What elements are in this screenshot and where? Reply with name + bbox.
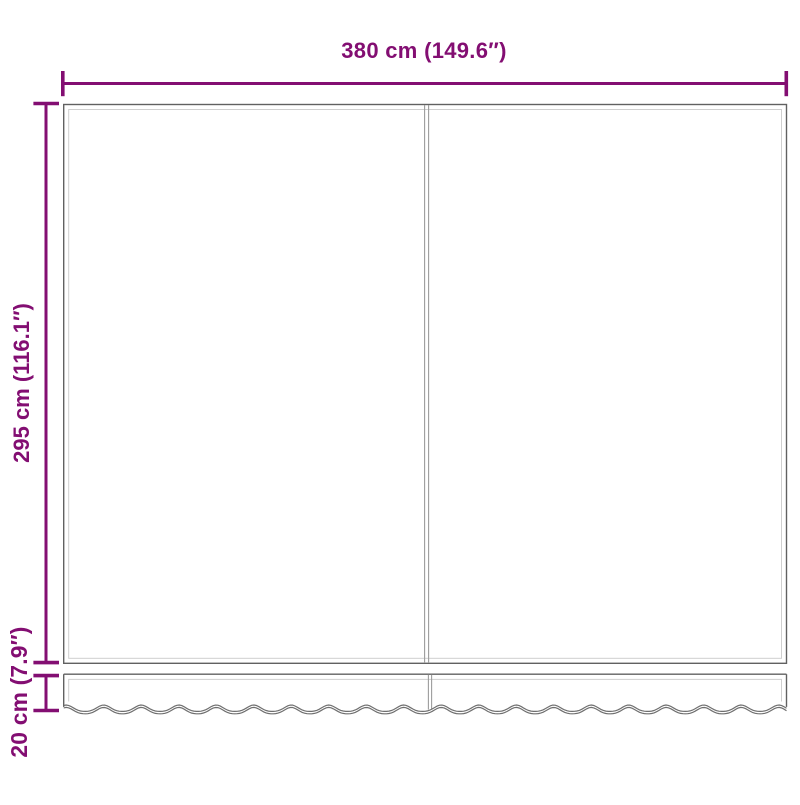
svg-text:20 cm (7.9″): 20 cm (7.9″) xyxy=(6,626,32,757)
svg-text:380 cm (149.6″): 380 cm (149.6″) xyxy=(341,38,506,63)
svg-text:295 cm (116.1″): 295 cm (116.1″) xyxy=(9,303,34,463)
